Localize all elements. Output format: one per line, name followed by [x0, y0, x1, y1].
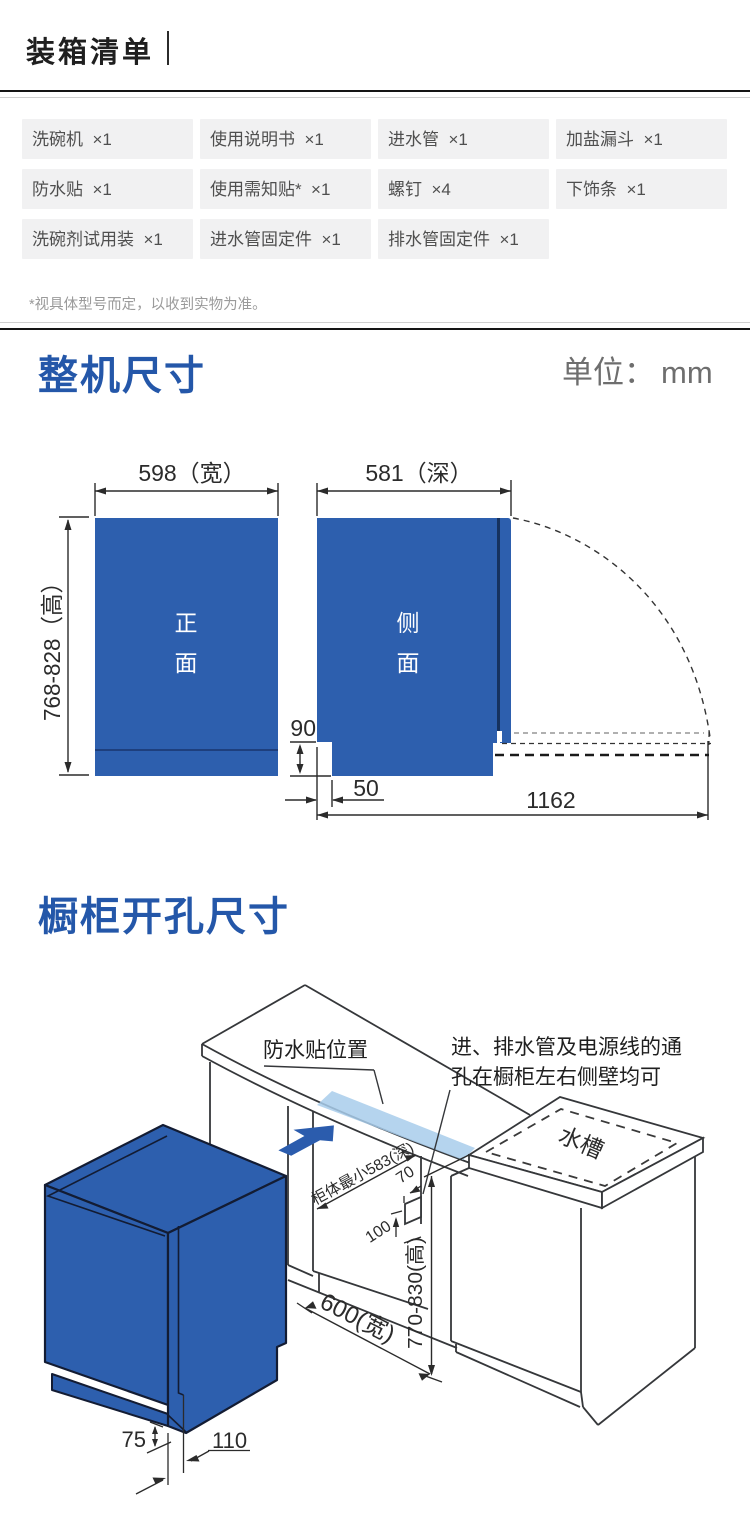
svg-text:600(宽): 600(宽): [316, 1288, 400, 1348]
svg-text:770-830(高): 770-830(高): [404, 1237, 427, 1349]
svg-text:进、排水管及电源线的通: 进、排水管及电源线的通: [451, 1036, 682, 1059]
svg-text:侧: 侧: [397, 610, 420, 636]
svg-text:90: 90: [290, 715, 316, 741]
svg-text:598（宽）: 598（宽）: [138, 460, 245, 486]
svg-text:75: 75: [122, 1427, 146, 1452]
svg-text:1162: 1162: [526, 787, 575, 813]
svg-text:100: 100: [363, 1218, 395, 1247]
svg-text:50: 50: [353, 775, 379, 801]
svg-text:防水贴位置: 防水贴位置: [263, 1039, 368, 1062]
svg-text:孔在橱柜左右侧壁均可: 孔在橱柜左右侧壁均可: [451, 1066, 661, 1089]
svg-text:581（深）: 581（深）: [365, 460, 472, 486]
svg-text:110: 110: [212, 1428, 247, 1453]
svg-text:面: 面: [175, 650, 198, 676]
svg-text:面: 面: [397, 650, 420, 676]
svg-text:70: 70: [393, 1163, 417, 1187]
svg-text:768-828（高）: 768-828（高）: [39, 571, 65, 721]
svg-text:正: 正: [175, 610, 198, 636]
